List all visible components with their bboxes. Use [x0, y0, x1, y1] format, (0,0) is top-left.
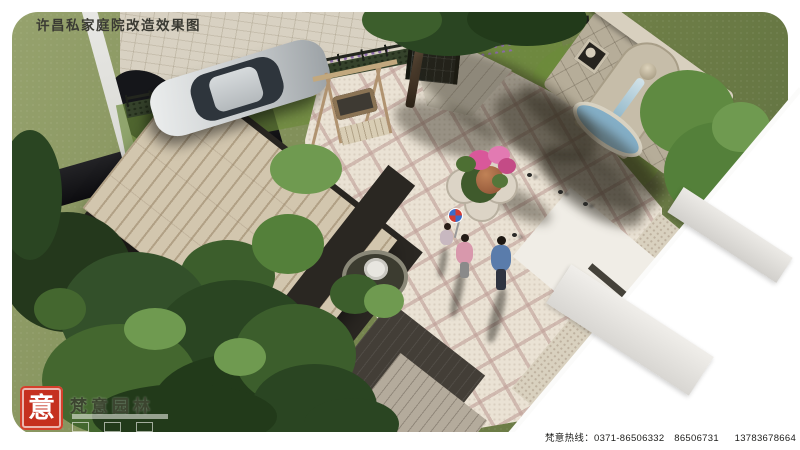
hotline-text: 梵意热线：0371-86506332 86506731 13783678664（…: [545, 430, 800, 444]
swing-seat: [332, 87, 379, 120]
ornamental-grass: [270, 144, 342, 194]
pigeon: [558, 190, 563, 194]
leaf-highlights: [124, 308, 186, 350]
seal-character: 意: [28, 395, 55, 422]
flower-leaves: [492, 174, 508, 188]
logo-service-box: [104, 422, 121, 432]
company-logo: 意 梵意园林: [20, 386, 170, 434]
shrub: [252, 214, 324, 274]
logo-subtitle-bar: [72, 414, 168, 419]
pond-plants: [364, 284, 404, 318]
man-head: [497, 236, 506, 245]
swing-bench: [312, 54, 402, 159]
pigeon: [583, 202, 588, 206]
red-seal: 意: [20, 386, 63, 430]
flower-leaves: [456, 156, 476, 172]
pigeon: [512, 233, 517, 237]
pinwheel: [448, 208, 463, 223]
child-head: [444, 223, 451, 230]
logo-service-box: [72, 422, 89, 432]
man-figure: [488, 236, 520, 294]
child-with-pinwheel: [436, 206, 476, 252]
child-body: [440, 230, 453, 245]
logo-service-box: [136, 422, 153, 432]
drawing-title: 许昌私家庭院改造效果图: [36, 14, 201, 34]
pigeon: [527, 173, 532, 177]
swing-base-board: [339, 116, 390, 145]
man-legs: [496, 269, 506, 290]
presentation-board: 许昌私家庭院改造效果图 梵意热线：0371-86506332 86506731 …: [0, 0, 800, 450]
man-body: [491, 245, 511, 271]
leaf-highlights: [34, 288, 86, 330]
woman-legs: [460, 262, 469, 278]
swing-beam: [312, 59, 397, 82]
leaf-highlights: [214, 338, 266, 376]
flowers-magenta: [498, 158, 516, 174]
